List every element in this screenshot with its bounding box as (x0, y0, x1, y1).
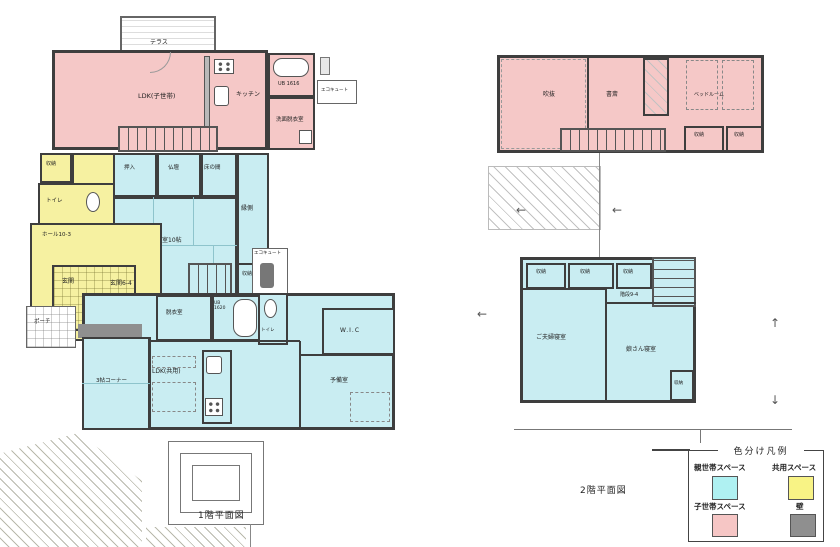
daughter-room-label: 娘さん寝室 (626, 347, 656, 354)
sheet-mark (250, 524, 251, 547)
room-closet-hall (40, 153, 72, 183)
room-closet-2f-c (616, 263, 652, 289)
legend-swatch-parent (712, 476, 738, 500)
yobi-label: 予備室 (330, 378, 348, 385)
hall-label: ホール10-3 (42, 232, 71, 238)
legend-swatch-wall (790, 514, 816, 537)
shosai-label: 書斎 (606, 92, 618, 99)
flow-arrow-left-3: ← (477, 308, 487, 320)
closet-engawa-label: 収納 (242, 272, 252, 278)
ground-tick (700, 429, 701, 443)
flow-arrow-down: ↓ (770, 394, 780, 406)
outdoor-unit (320, 57, 330, 75)
room-oshiire (113, 153, 157, 197)
floor1-caption: 1階平面図 (198, 508, 245, 521)
tokonoma-label: 床の間 (204, 165, 221, 171)
legend-swatch-shared (788, 476, 814, 500)
room-butsudan (157, 153, 201, 197)
furniture-outline (152, 382, 196, 412)
bathtub-icon-2 (233, 299, 257, 337)
tatami-line (193, 197, 194, 245)
roof-line (599, 153, 600, 265)
flow-arrow-left-1: ← (516, 204, 526, 216)
partition (300, 354, 395, 356)
closet-2f-c-label: 収納 (623, 270, 633, 276)
washer-icon (299, 130, 312, 144)
butsudan-label: 仏壇 (168, 165, 179, 171)
ldk-child-label: LDK(子世帯) (138, 93, 175, 100)
stove-icon-2 (205, 398, 223, 416)
stove-icon (214, 59, 234, 74)
room-closet-2f-d (684, 126, 724, 152)
ecocute-label-1: エコキュート (321, 88, 348, 93)
flow-arrow-up: ↑ (770, 317, 780, 329)
toilet-icon (86, 192, 100, 212)
closet-mid-2f (643, 58, 669, 116)
ground-hatch (146, 527, 246, 547)
legend-label-child: 子世帯スペース (694, 503, 746, 512)
closet-2f-a-label: 収納 (536, 270, 546, 276)
terrace-label: テラス (150, 40, 168, 47)
partition (523, 288, 607, 290)
roof-hatch (488, 166, 601, 230)
toilet-2-label: トイレ (261, 328, 275, 333)
partition (150, 340, 300, 342)
partition (587, 58, 589, 130)
driveway-hatch (0, 433, 142, 547)
unitbath-parent-label: UB 1620 (214, 301, 232, 311)
stairs-child (118, 126, 218, 152)
room-closet-2f-a (526, 263, 566, 289)
sink-icon-2 (206, 356, 222, 374)
floorplan-sheet: テラス LDK(子世帯) キッチン UB 1616 洗面脱衣室 エコキュート 押… (0, 0, 840, 547)
partition (605, 289, 607, 403)
legend-swatch-child (712, 514, 738, 537)
engawa-label: 縁側 (241, 206, 253, 213)
ecocute-label-2: エコキュート (254, 251, 281, 256)
legend-label-parent: 親世帯スペース (694, 464, 746, 473)
datsui-label: 脱衣室 (166, 310, 183, 316)
couple-room-label: ご夫婦寝室 (536, 335, 566, 342)
oshiire-label: 押入 (124, 165, 135, 171)
room-closet-2f-b (568, 263, 614, 289)
stairs-2f-parent (652, 257, 696, 307)
wic-label: W.I.C (340, 328, 360, 335)
room-closet-2f-e (726, 126, 763, 152)
bed-outline (350, 392, 390, 422)
legend-label-wall: 壁 (796, 503, 804, 512)
closet-2f-f-label: 収納 (674, 381, 683, 386)
toilet-1-label: トイレ (46, 198, 63, 204)
bed-outline (686, 60, 718, 110)
wall-strip (78, 324, 142, 338)
ground-line (514, 429, 792, 430)
furniture-outline (152, 356, 196, 368)
partition (606, 302, 696, 304)
legend-line-left (652, 449, 690, 451)
closet-2f-b-label: 収納 (580, 270, 590, 276)
legend-label-shared: 共用スペース (772, 464, 816, 473)
bed-outline (722, 60, 754, 110)
washroom-label: 洗面脱衣室 (276, 117, 304, 123)
floor2-caption: 2階平面図 (580, 483, 627, 496)
ecocute-tank (260, 263, 274, 288)
ldk-shared-label: LDK(共用) (152, 369, 181, 376)
genkan-label: 玄関 (62, 279, 74, 286)
legend-title: 色分け凡例 (718, 444, 804, 457)
terrace-deck (120, 16, 216, 52)
sink-icon (214, 86, 229, 106)
stairs-2f-child (560, 128, 666, 152)
room-datsui (156, 295, 212, 341)
room-tokonoma (201, 153, 237, 197)
closet-hall-label: 収納 (46, 162, 56, 168)
approach-steps-inner (192, 465, 240, 501)
stairs-parent (188, 263, 232, 295)
room-porch (26, 306, 76, 348)
toilet-icon-2 (264, 299, 277, 318)
unitbath-child-label: UB 1616 (278, 82, 299, 88)
closet-2f-d-label: 収納 (694, 133, 704, 139)
closet-2f-e-label: 収納 (734, 133, 744, 139)
kaidan-label: 階段9-4 (620, 293, 638, 299)
porch-label: ポーチ (34, 319, 51, 325)
fukinuke-label: 吹抜 (543, 92, 555, 99)
corner-label: 3帖コーナー (96, 378, 127, 384)
kitchen-label: キッチン (236, 92, 260, 99)
genkan-hall-label: 玄関6-4 (110, 281, 132, 288)
flow-arrow-left-2: ← (612, 204, 622, 216)
bathtub-icon (273, 58, 309, 77)
